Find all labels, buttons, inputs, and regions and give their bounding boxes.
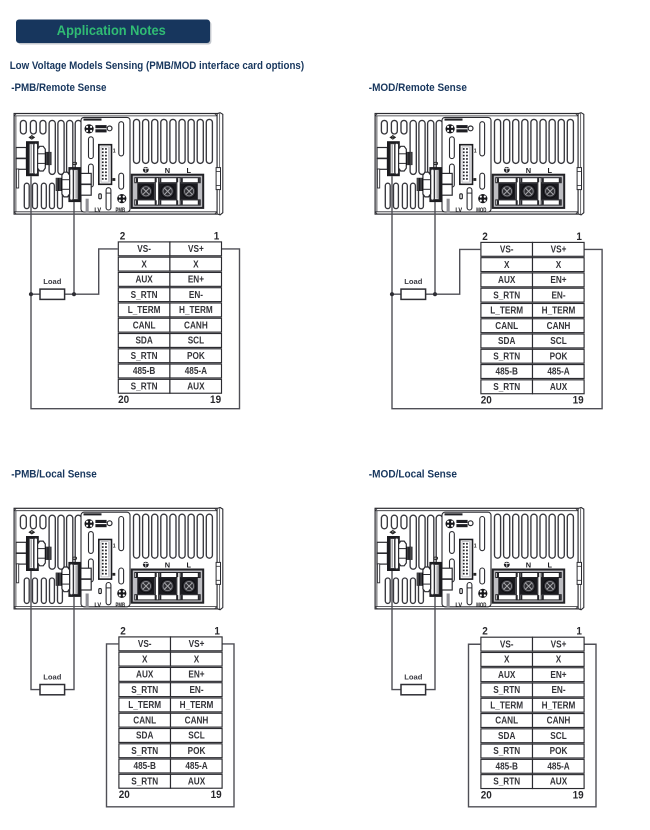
svg-text:MOD: MOD (476, 602, 486, 609)
svg-text:Load: Load (404, 277, 423, 286)
svg-text:-MOD/Remote Sense: -MOD/Remote Sense (369, 82, 467, 93)
svg-text:Load: Load (43, 672, 62, 681)
svg-text:MOD: MOD (476, 208, 486, 215)
svg-text:-PMB/Remote Sense: -PMB/Remote Sense (11, 82, 107, 94)
svg-text:Load: Load (404, 672, 423, 681)
svg-text:Low Voltage Models Sensing (PM: Low Voltage Models Sensing (PMB/MOD inte… (10, 60, 304, 73)
svg-text:Application Notes: Application Notes (57, 23, 166, 39)
svg-text:Load: Load (43, 277, 62, 286)
svg-text:PMB: PMB (116, 602, 126, 609)
svg-text:PMB: PMB (116, 208, 126, 215)
svg-text:-MOD/Local Sense: -MOD/Local Sense (369, 469, 457, 480)
svg-text:-PMB/Local Sense: -PMB/Local Sense (11, 469, 97, 481)
